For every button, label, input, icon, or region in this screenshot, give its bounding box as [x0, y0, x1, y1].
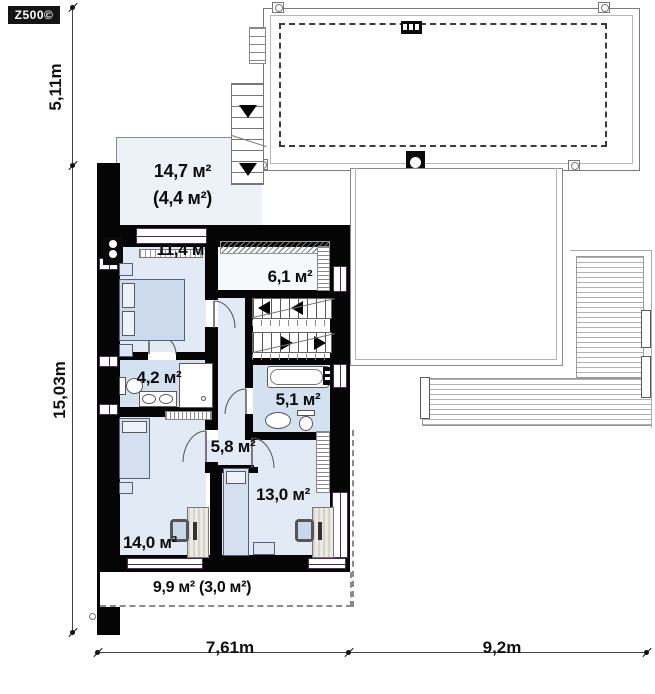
door-arc-icon — [213, 300, 235, 328]
room-label-hall: 5,8 м² — [200, 437, 266, 457]
pillow-icon — [122, 421, 147, 433]
room-label-bathroom-main: 5,1 м² — [266, 390, 330, 410]
room-label-bedroom-right: 13,0 м² — [238, 485, 328, 505]
nightstand-icon — [119, 263, 133, 276]
window — [333, 364, 347, 388]
z500-logo: Z500© — [8, 6, 60, 24]
towel-bar — [325, 371, 330, 374]
towel-bar — [325, 377, 330, 380]
pergola-outer-line — [570, 250, 652, 428]
wardrobe-rail-icon — [220, 241, 330, 254]
dim-label-bottom-right: 9,2m — [472, 638, 532, 658]
window — [99, 404, 118, 415]
terrace-area-main: 14,7 м² — [120, 158, 245, 185]
sink-bowl — [142, 394, 156, 404]
roof-overhang-dashed-line — [352, 430, 354, 607]
terrace-area-secondary: (4,4 м²) — [120, 185, 245, 212]
desk-icon — [312, 507, 334, 558]
stairs-step-numbers — [252, 354, 332, 360]
room-label-bathroom-small: 4,2 м² — [128, 368, 190, 388]
dim-line-bottom — [97, 652, 647, 653]
monitor-icon — [318, 522, 322, 540]
toilet-icon — [119, 377, 126, 395]
vent-slot — [409, 24, 413, 30]
pergola-post — [641, 310, 651, 348]
bathtub-inner — [270, 369, 323, 385]
wardrobe-shelf-icon — [316, 431, 330, 493]
dim-line-left — [72, 7, 73, 633]
window — [99, 356, 118, 367]
window — [332, 492, 348, 558]
pergola-post — [641, 356, 651, 398]
pillow-icon — [226, 471, 246, 484]
stairs-down-arrow-icon — [239, 105, 257, 118]
pillow-icon — [122, 283, 135, 308]
wall-interior — [205, 327, 218, 360]
room-label-terrace-top: 14,7 м² (4,4 м²) — [120, 158, 245, 212]
room-label-wardrobe: 6,1 м² — [255, 267, 325, 287]
lower-roof-inner-line — [355, 168, 557, 360]
dim-label-bottom-left: 7,61m — [190, 638, 270, 658]
pillow-icon — [122, 311, 135, 336]
pergola-post — [420, 377, 430, 419]
wall-interior — [218, 290, 332, 298]
chair-icon — [295, 519, 314, 542]
dim-label-left-lower: 15,03m — [50, 354, 70, 426]
shower-drain — [201, 396, 206, 401]
floor-plan: 14,7 м² (4,4 м²) 11,4 м² 6,1 м² 4,2 м² 5… — [0, 0, 655, 694]
side-table-icon — [253, 542, 275, 555]
shelf-icon — [165, 411, 212, 420]
chair-seat — [298, 522, 311, 539]
window — [308, 558, 346, 569]
sink-icon — [265, 412, 291, 429]
room-label-balcony: 9,9 м² (3,0 м²) — [128, 579, 276, 597]
window — [127, 558, 203, 569]
downspout-icon — [272, 2, 284, 13]
nightstand-icon — [119, 344, 133, 357]
washer-icon — [103, 237, 123, 265]
ladder-icon — [249, 27, 266, 64]
wall-interior — [210, 473, 222, 557]
vent-slot — [415, 24, 419, 30]
roof-dashed-edge — [279, 23, 607, 147]
vent-slot — [403, 24, 407, 30]
roof-vent-icon — [401, 21, 422, 34]
washer-drum — [109, 240, 117, 248]
dim-label-left-upper: 5,11m — [46, 57, 66, 117]
nightstand-icon — [119, 482, 133, 494]
chimney-flue — [410, 157, 421, 168]
towel-radiator-icon — [323, 367, 332, 385]
stairs-step-numbers — [252, 320, 332, 326]
sink-bowl — [159, 394, 173, 404]
door-arc-icon — [225, 388, 246, 414]
room-label-bedroom-upper: 11,4 м² — [138, 240, 228, 260]
downspout-icon — [568, 160, 580, 171]
washer-drum — [109, 250, 117, 258]
toilet-icon — [299, 416, 313, 431]
downspout-icon — [89, 613, 96, 620]
wall-interior — [176, 352, 205, 360]
downspout-icon — [598, 2, 610, 13]
room-label-bedroom-lower: 14,0 м² — [106, 533, 194, 553]
window — [333, 266, 347, 292]
